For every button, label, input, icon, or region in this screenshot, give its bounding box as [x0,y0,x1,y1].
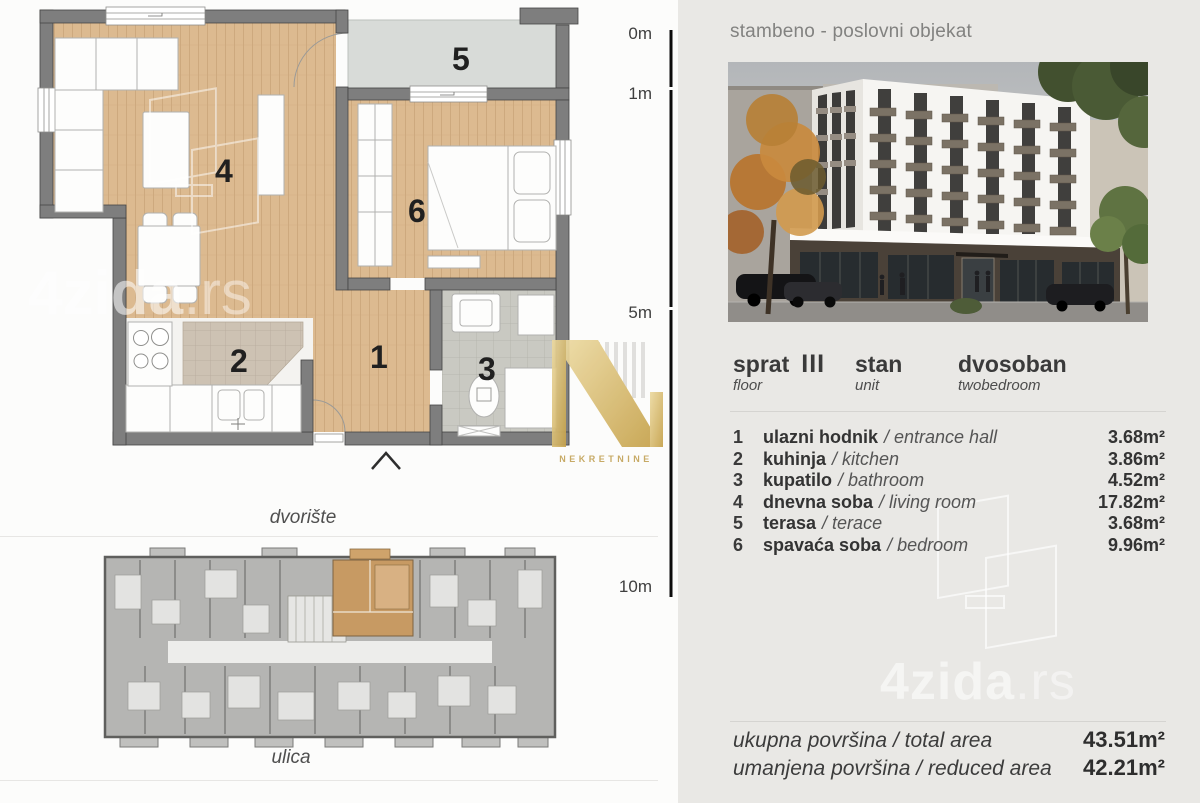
reduced-area-row: umanjena površina / reduced area 42.21m² [733,755,1165,783]
room-name-en: / terace [822,513,882,533]
scale-label-5m: 5m [628,303,652,322]
floor-value: III [801,350,825,378]
agency-watermark-text: NEKRETNINE [559,454,653,464]
totals: ukupna površina / total area 43.51m² uma… [733,727,1165,783]
type-value: dvosoban [958,351,1067,377]
type-sublabel: twobedroom [958,377,1067,394]
room-name-sr: spavaća soba [763,535,881,555]
room-name-en: / living room [879,492,976,512]
room-name-en: / kitchen [832,449,899,469]
page-title: stambeno - poslovni objekat [730,21,972,43]
room-name-sr: kuhinja [763,449,826,469]
shower [505,368,556,428]
room-num: 3 [733,470,763,491]
room-number-1: 1 [370,339,388,375]
washing-machine [518,295,554,335]
bush [950,298,982,314]
floor-label: sprat [733,351,789,377]
room-num: 4 [733,492,763,513]
scale-label-10m: 10m [619,577,652,596]
room-row-6: 6 spavaća soba/ bedroom 9.96m² [733,535,1165,557]
bed-bench [428,256,480,268]
room-area: 3.68m² [1108,427,1165,448]
reduced-area-value: 42.21m² [1083,755,1165,781]
room-name-en: / entrance hall [884,427,997,447]
plan-watermark: 4zida.rs [28,259,252,328]
room-row-2: 2 kuhinja/ kitchen 3.86m² [733,449,1165,471]
apartment-plan: 4zida.rs 1 2 3 4 5 6 dvorište [28,7,578,528]
street-label: ulica [271,747,310,768]
tv-unit [258,95,284,195]
room-area: 4.52m² [1108,470,1165,491]
room-area: 17.82m² [1098,492,1165,513]
room-row-4: 4 dnevna soba/ living room 17.82m² [733,492,1165,514]
room-number-5: 5 [452,41,470,77]
floor-plan-panel: 4zida.rs 1 2 3 4 5 6 dvorište [0,0,678,803]
room-area: 3.86m² [1108,449,1165,470]
reduced-area-label: umanjena površina / reduced area [733,757,1083,781]
listing-sheet: 4zida.rs 1 2 3 4 5 6 dvorište [0,0,1200,803]
total-area-value: 43.51m² [1083,727,1165,753]
building-key-plan: ulica [105,548,555,768]
room-number-4: 4 [215,153,233,189]
pillow [514,152,550,194]
room-area: 3.68m² [1108,513,1165,534]
room-num: 5 [733,513,763,534]
floor-info: spratIII floor [733,352,825,394]
unit-sublabel: unit [855,377,902,394]
kitchen-counter [126,385,301,432]
room-name-sr: dnevna soba [763,492,873,512]
room-name-sr: terasa [763,513,816,533]
scale-label-0m: 0m [628,24,652,43]
room-num: 1 [733,427,763,448]
total-area-row: ukupna površina / total area 43.51m² [733,727,1165,755]
room-name-en: / bathroom [838,470,924,490]
room-name-en: / bedroom [887,535,968,555]
brand-watermark: 4zida.rs [880,652,1076,712]
scale-label-1m: 1m [628,84,652,103]
building-photo [728,62,1148,322]
unit-info: stan unit [855,352,902,394]
room-name-sr: ulazni hodnik [763,427,878,447]
key-plan-corridor [168,641,492,663]
scale-bar: 0m 1m 5m 10m [619,24,676,597]
room-num: 2 [733,449,763,470]
room-name-sr: kupatilo [763,470,832,490]
room-number-2: 2 [230,343,248,379]
key-plan-highlighted-unit [333,549,413,636]
room-area: 9.96m² [1108,535,1165,556]
entrance-arrow-icon [372,453,400,469]
room-num: 6 [733,535,763,556]
type-info: dvosoban twobedroom [958,352,1067,394]
kitchen-sink [218,390,240,420]
floor-plan-svg: 4zida.rs 1 2 3 4 5 6 dvorište [0,0,678,803]
room-row-1: 1 ulazni hodnik/ entrance hall 3.68m² [733,427,1165,449]
left-divider-bottom [0,780,658,781]
room-row-3: 3 kupatilo/ bathroom 4.52m² [733,470,1165,492]
main-building [790,79,1120,308]
courtyard-label: dvorište [270,507,337,528]
divider [730,411,1166,412]
floor-sublabel: floor [733,377,825,394]
room-row-5: 5 terasa/ terace 3.68m² [733,513,1165,535]
total-area-label: ukupna površina / total area [733,729,1083,753]
divider [730,721,1166,722]
room-number-6: 6 [408,193,426,229]
room-number-3: 3 [478,351,496,387]
room-list: 1 ulazni hodnik/ entrance hall 3.68m² 2 … [733,427,1165,557]
details-panel: stambeno - poslovni objekat [678,0,1200,803]
pillow [514,200,550,242]
left-divider-top [0,536,658,537]
unit-label: stan [855,351,902,377]
